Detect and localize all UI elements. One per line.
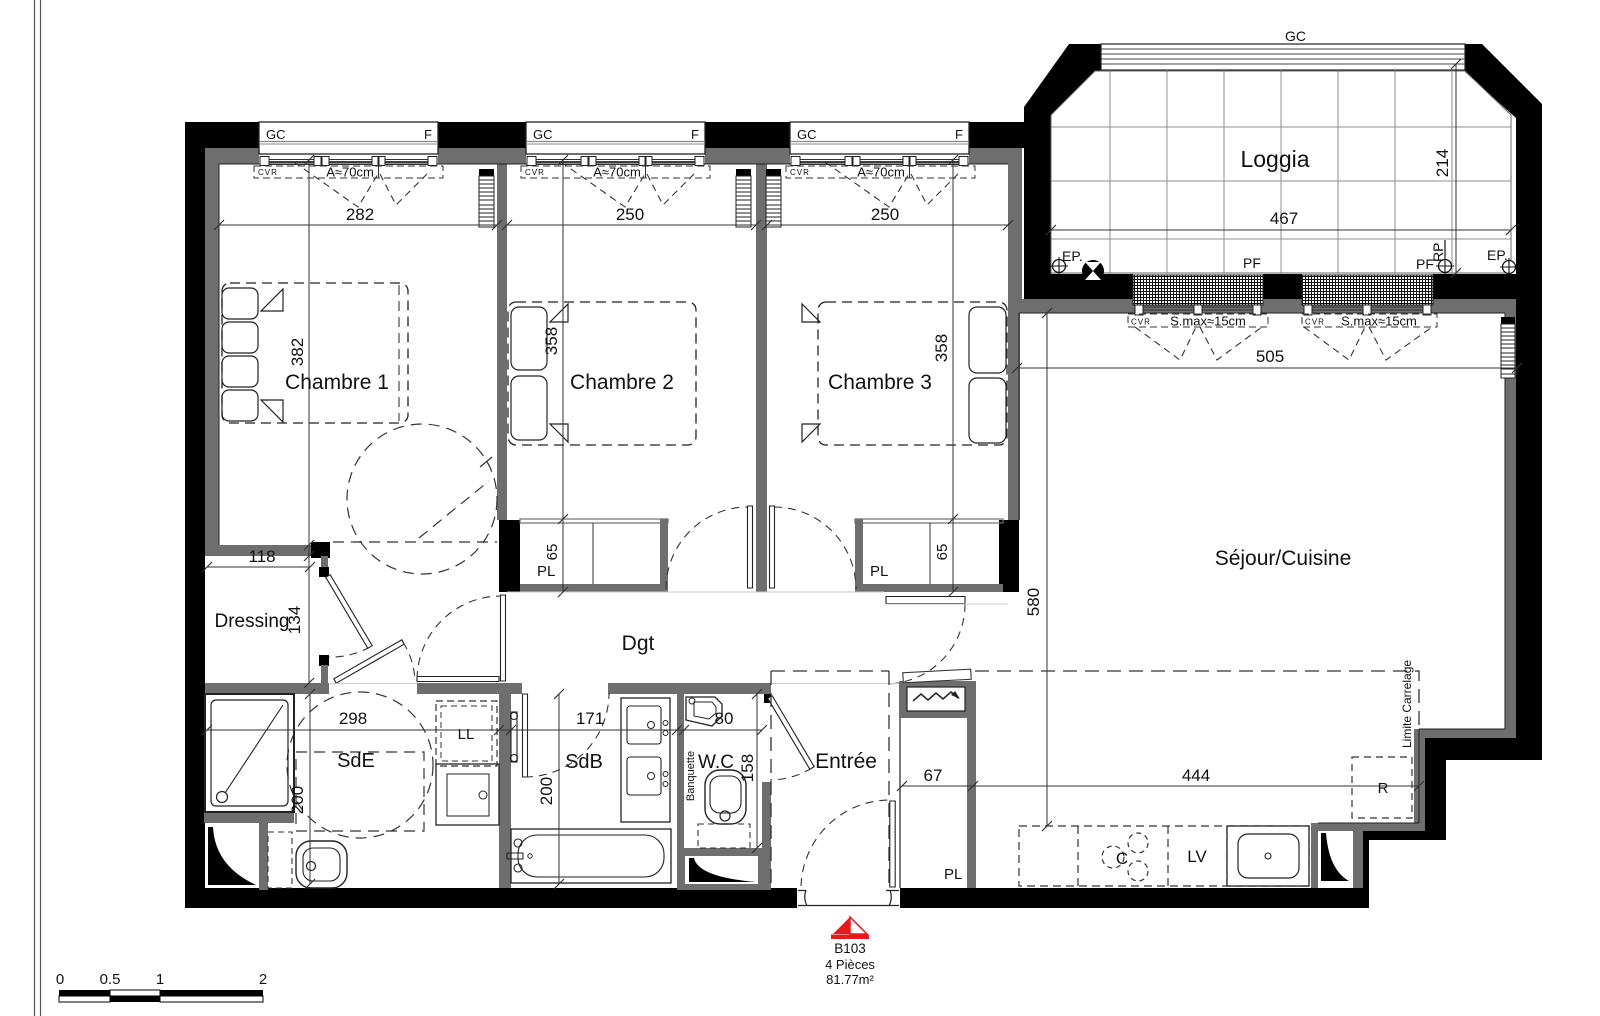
svg-text:118: 118: [248, 547, 275, 566]
svg-text:158: 158: [738, 754, 757, 782]
svg-text:A≈70cm: A≈70cm: [593, 165, 641, 180]
svg-text:F: F: [691, 127, 699, 142]
svg-text:67: 67: [924, 766, 943, 785]
svg-text:CVR: CVR: [1131, 318, 1151, 327]
svg-text:Dressing: Dressing: [215, 611, 290, 632]
svg-text:GC: GC: [266, 127, 286, 142]
svg-text:SdB: SdB: [565, 751, 603, 773]
svg-text:282: 282: [346, 205, 374, 224]
svg-text:4 Pièces: 4 Pièces: [825, 957, 875, 972]
svg-text:F: F: [424, 127, 432, 142]
svg-text:Chambre 2: Chambre 2: [570, 371, 674, 394]
svg-text:467: 467: [1270, 209, 1298, 228]
svg-text:1: 1: [156, 971, 164, 988]
svg-text:PL: PL: [870, 563, 888, 580]
svg-text:SdE: SdE: [337, 750, 375, 772]
svg-text:A≈70cm: A≈70cm: [857, 165, 905, 180]
svg-text:CVR: CVR: [1305, 318, 1325, 327]
svg-text:PF: PF: [1416, 256, 1434, 272]
svg-text:B103: B103: [834, 941, 866, 956]
svg-text:EP.: EP.: [1487, 247, 1508, 263]
svg-text:298: 298: [339, 709, 367, 728]
svg-text:250: 250: [616, 205, 644, 224]
svg-text:Limite Carrelage: Limite Carrelage: [1400, 660, 1414, 748]
svg-text:CVR: CVR: [258, 168, 278, 177]
svg-text:200: 200: [537, 777, 556, 805]
svg-text:0: 0: [56, 971, 64, 988]
svg-text:Banquette: Banquette: [685, 751, 697, 801]
svg-text:171: 171: [576, 709, 604, 728]
svg-text:CVR: CVR: [525, 168, 545, 177]
svg-text:Dgt: Dgt: [622, 632, 655, 655]
svg-text:0.5: 0.5: [100, 971, 121, 988]
svg-text:A≈70cm: A≈70cm: [326, 165, 374, 180]
svg-text:GC: GC: [533, 127, 553, 142]
svg-text:214: 214: [1433, 149, 1452, 177]
svg-text:LV: LV: [1187, 847, 1207, 866]
svg-text:PL: PL: [944, 866, 962, 883]
svg-text:200: 200: [288, 786, 307, 814]
svg-text:EP.: EP.: [1062, 248, 1083, 264]
svg-text:Séjour/Cuisine: Séjour/Cuisine: [1215, 547, 1352, 570]
svg-text:65: 65: [934, 544, 951, 561]
svg-text:LL: LL: [458, 726, 475, 743]
svg-text:GC: GC: [797, 127, 817, 142]
svg-text:F: F: [955, 127, 963, 142]
svg-text:PL: PL: [537, 563, 555, 580]
svg-text:Chambre 1: Chambre 1: [285, 371, 389, 394]
svg-text:W.C: W.C: [698, 752, 734, 773]
svg-text:GC: GC: [1285, 28, 1306, 44]
svg-text:R: R: [1378, 780, 1389, 797]
svg-text:CVR: CVR: [790, 168, 810, 177]
svg-text:2: 2: [259, 971, 267, 988]
svg-text:65: 65: [544, 544, 561, 561]
svg-text:505: 505: [1256, 347, 1284, 366]
svg-text:580: 580: [1024, 588, 1043, 616]
svg-text:382: 382: [288, 338, 307, 366]
svg-text:444: 444: [1182, 766, 1210, 785]
svg-text:S.max≈15cm: S.max≈15cm: [1341, 314, 1417, 329]
svg-text:358: 358: [932, 334, 951, 362]
svg-text:358: 358: [542, 327, 561, 355]
svg-text:80: 80: [715, 709, 734, 728]
svg-text:C: C: [1116, 849, 1128, 868]
svg-text:S.max≈15cm: S.max≈15cm: [1170, 314, 1246, 329]
svg-text:Chambre 3: Chambre 3: [828, 371, 932, 394]
svg-text:Loggia: Loggia: [1240, 146, 1309, 172]
svg-text:81.77m²: 81.77m²: [826, 972, 874, 987]
svg-text:250: 250: [871, 205, 899, 224]
svg-text:PF: PF: [1243, 255, 1261, 271]
svg-text:Entrée: Entrée: [815, 750, 877, 773]
